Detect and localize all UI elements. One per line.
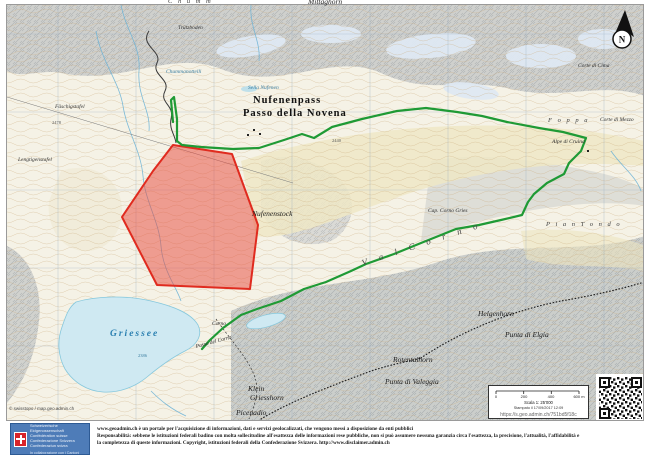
map-attribution: © swisstopo / map.geo.admin.ch — [9, 405, 75, 411]
disclaimer-line: la completezza di queste informazioni. C… — [97, 440, 645, 447]
swiss-confederation-logo: Schweizerische Eidgenossenschaft Confédé… — [10, 423, 90, 455]
short-link: https://s.geo.admin.ch/751bd5f18c — [500, 412, 577, 418]
logo-line: Schweizerische Eidgenossenschaft — [30, 423, 89, 433]
scale-tick: 400 — [548, 394, 555, 399]
qr-code — [596, 374, 643, 420]
logo-subline: In collaborazione con i Cantoni — [30, 451, 89, 456]
topographic-map: N 0 200 400 600 m Scala 1: 25'000 Stampa… — [6, 4, 644, 421]
swiss-cross-icon — [14, 432, 27, 447]
scale-tick: 200 — [521, 394, 528, 399]
sella-lakelet — [241, 86, 257, 92]
scale-text: Scala 1: 25'000 — [524, 400, 553, 405]
north-label: N — [619, 35, 626, 45]
scale-box: 0 200 400 600 m Scala 1: 25'000 Stampato… — [489, 386, 589, 419]
disclaimer-text: www.geoadmin.ch è un portale per l'acqui… — [97, 426, 645, 447]
scale-tick: 600 m — [573, 394, 585, 399]
logo-line: Confederaziun svizra — [30, 443, 89, 448]
disclaimer-line: Responsabilità: sebbene le istituzioni f… — [97, 433, 645, 440]
printed-date: Stampato il 17/09/2017 12:09 — [514, 406, 564, 410]
disclaimer-line: www.geoadmin.ch è un portale per l'acqui… — [97, 426, 645, 433]
footer: Schweizerische Eidgenossenschaft Confédé… — [0, 423, 650, 458]
map-print-page: N 0 200 400 600 m Scala 1: 25'000 Stampa… — [0, 0, 650, 458]
